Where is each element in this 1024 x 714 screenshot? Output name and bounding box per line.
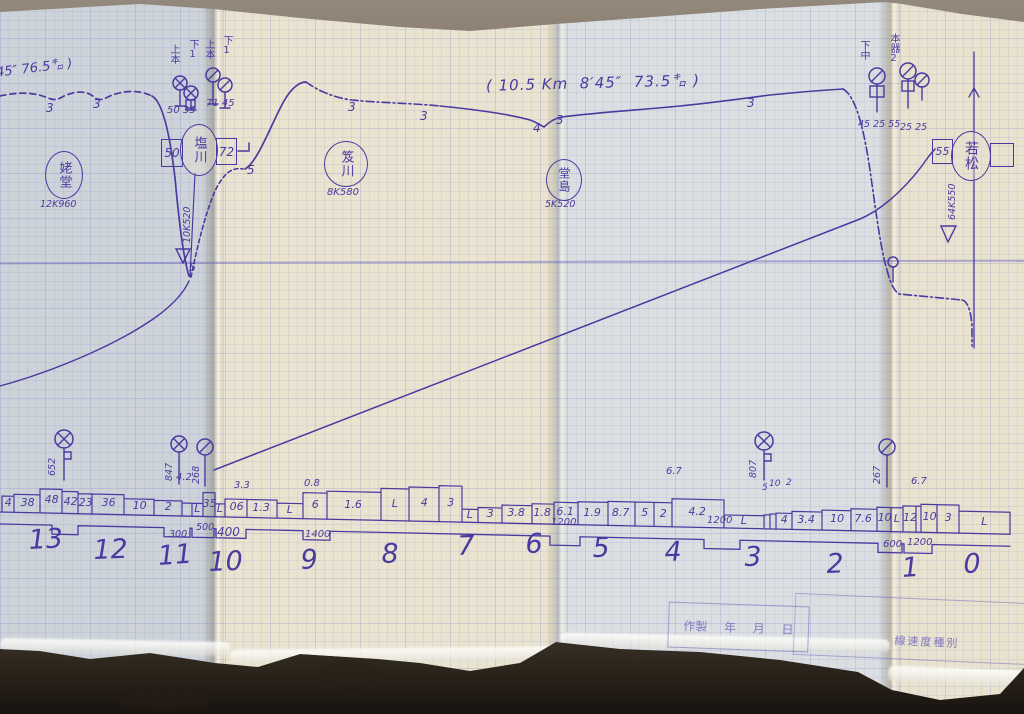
gradient-value: 1.8 bbox=[533, 507, 551, 518]
station-name-shiokawa: 塩川 bbox=[193, 136, 206, 164]
station-box-shiokawa-right: 72 bbox=[216, 138, 237, 165]
speed-class-label: 線速度種別 bbox=[894, 632, 960, 651]
handwritten-label: 11 bbox=[157, 541, 193, 570]
signal-circle-slash-icon bbox=[900, 63, 916, 108]
handwritten-label: 9 bbox=[300, 546, 319, 574]
speed-curve-left-dashed bbox=[0, 92, 152, 100]
handwritten-label: 1200 bbox=[551, 518, 576, 528]
stop-triangle-wakamatsu bbox=[941, 226, 956, 242]
handwritten-label: 0 bbox=[963, 550, 981, 578]
handwritten-label: 3 bbox=[556, 114, 564, 126]
gradient-value: 10 bbox=[830, 513, 844, 524]
handwritten-label: 下1 bbox=[221, 35, 231, 56]
handwritten-label: 10 bbox=[769, 480, 780, 489]
gradient-value: 38 bbox=[21, 497, 35, 508]
gradient-value: 2 bbox=[660, 508, 667, 519]
speed-class-stamp-box: 線速度種別 bbox=[793, 593, 1024, 665]
station-circle-wakamatsu: 若松 bbox=[951, 131, 991, 181]
handwritten-label: 1200 bbox=[907, 538, 932, 548]
handwritten-label: 25 25 bbox=[900, 123, 927, 133]
handwritten-label: 10K520 bbox=[183, 207, 193, 243]
gradient-value: 12 bbox=[903, 512, 917, 523]
stamp-year-label: 年 bbox=[724, 618, 737, 635]
handwritten-label: 6.7 bbox=[911, 477, 927, 487]
gradient-value: 10 bbox=[133, 500, 147, 511]
station-name-ubado: 姥堂 bbox=[58, 161, 71, 189]
station-box-shiokawa-left: 50 bbox=[161, 139, 183, 167]
handwritten-label: 3.3 bbox=[234, 481, 250, 491]
handwritten-label: 10 bbox=[208, 548, 243, 576]
stone-texture-blotch bbox=[120, 690, 210, 710]
handwritten-label: 50 35 bbox=[167, 106, 196, 116]
profile-baseline-with-notches bbox=[0, 524, 1010, 554]
handwritten-label: 7 bbox=[457, 532, 475, 560]
station-name-wakamatsu: 若松 bbox=[964, 141, 978, 171]
handwritten-label: 4 bbox=[533, 122, 541, 134]
handwritten-label: 13 bbox=[28, 525, 64, 554]
station-km-dojima: 5K520 bbox=[545, 200, 575, 210]
handwritten-label: 下1 bbox=[187, 39, 197, 60]
gradient-value: L bbox=[217, 503, 223, 514]
handwritten-label: 268 bbox=[192, 466, 202, 484]
signal-circle-slash-icon bbox=[915, 73, 929, 100]
handwritten-label: 500 bbox=[196, 523, 214, 533]
handwritten-label: 5 bbox=[247, 164, 255, 176]
gradient-value: 2 bbox=[165, 501, 172, 512]
handwritten-label: 5 bbox=[592, 534, 610, 562]
gradient-value: L bbox=[287, 504, 293, 515]
gradient-value: 4 bbox=[781, 514, 788, 525]
gradient-value: 36 bbox=[102, 497, 116, 508]
handwritten-label: 1 bbox=[901, 554, 920, 582]
gradient-value: 3.4 bbox=[797, 514, 815, 525]
handwritten-label: 64K550 bbox=[948, 184, 958, 220]
station-name-oikawa: 笈川 bbox=[340, 150, 353, 178]
handwritten-label: 847 bbox=[165, 463, 175, 481]
gradient-value: 5 bbox=[641, 507, 648, 518]
station-circle-oikawa: 笈川 bbox=[324, 141, 368, 187]
handwritten-label: 上本 bbox=[203, 39, 213, 59]
handwritten-label: 2 bbox=[786, 479, 792, 488]
handwritten-label: 1200 bbox=[707, 516, 732, 526]
handwritten-label: 3 bbox=[420, 110, 428, 122]
stamp-made-label: 作製 bbox=[683, 617, 708, 635]
gradient-value: 3 bbox=[487, 508, 494, 519]
handwritten-label: 4 bbox=[664, 538, 682, 566]
station-box-wakamatsu-right bbox=[990, 143, 1014, 167]
handwritten-label: 5 bbox=[762, 484, 768, 493]
handwritten-label: 3 bbox=[744, 543, 762, 571]
gradient-value: L bbox=[194, 503, 200, 514]
wakamatsu-vertical-line bbox=[969, 52, 979, 348]
gradient-value: 6 bbox=[312, 499, 319, 510]
station-km-oikawa: 8K580 bbox=[327, 188, 359, 198]
gradient-value: 3.8 bbox=[507, 507, 525, 518]
gradient-value: L bbox=[894, 513, 900, 524]
handwritten-label: 3 bbox=[747, 97, 755, 109]
handwritten-label: 3 bbox=[46, 102, 54, 114]
handwritten-label: 6 bbox=[525, 530, 543, 558]
station-km-ubado: 12K960 bbox=[40, 200, 76, 210]
handwritten-label: 上本 bbox=[168, 44, 178, 64]
gradient-value: 8.7 bbox=[612, 507, 630, 518]
time-line-left bbox=[0, 281, 189, 386]
gradient-value: L bbox=[741, 515, 747, 526]
speed-curve-depart-dashed bbox=[191, 169, 243, 277]
handwritten-label: 600 bbox=[883, 540, 902, 550]
handwritten-label: 下中 bbox=[858, 40, 868, 60]
date-stamp-box: 作製 年 月 日 bbox=[667, 602, 810, 653]
handwritten-label: 0.8 bbox=[304, 479, 320, 489]
stamp-month-label: 月 bbox=[753, 619, 766, 636]
handwritten-label: 5 bbox=[189, 262, 196, 273]
handwritten-label: 4.2 bbox=[176, 473, 192, 483]
photo-of-railway-run-curve-chart: ( 10.5 Km 8′45″ 73.5㌔ ) 45″ 76.5㌔ ) 姥堂 1… bbox=[0, 0, 1024, 714]
signal-circle-slash-icon bbox=[869, 68, 885, 112]
signal-symbols bbox=[55, 63, 929, 487]
folded-graph-paper: ( 10.5 Km 8′45″ 73.5㌔ ) 45″ 76.5㌔ ) 姥堂 1… bbox=[0, 0, 1024, 714]
limit-bracket bbox=[238, 143, 249, 151]
gradient-value: 3 bbox=[945, 512, 952, 523]
gradient-value: L bbox=[467, 509, 473, 520]
gradient-value: 48 bbox=[45, 494, 59, 505]
handwritten-label: 71 45 bbox=[206, 99, 235, 109]
gradient-value: 23 bbox=[79, 497, 93, 508]
handwritten-label: 45 25 55 bbox=[858, 120, 900, 130]
station-name-dojima: 堂島 bbox=[558, 167, 570, 193]
handwritten-label: 8 bbox=[381, 540, 399, 568]
gradient-value: L bbox=[392, 498, 398, 509]
handwritten-label: 6.7 bbox=[666, 467, 682, 477]
station-circle-shiokawa: 塩川 bbox=[180, 124, 218, 176]
stamp-day-label: 日 bbox=[781, 620, 794, 637]
gradient-value: 42 bbox=[64, 496, 78, 507]
handwritten-label: 3 bbox=[348, 101, 356, 113]
speed-curve-middle bbox=[440, 89, 843, 127]
gradient-value: 4 bbox=[5, 497, 12, 508]
handwritten-label: 652 bbox=[48, 458, 58, 476]
gradient-value: 4.2 bbox=[688, 506, 706, 517]
handwritten-label: 本器2 bbox=[888, 33, 898, 64]
handwritten-label: 2 bbox=[826, 550, 844, 578]
gradient-value: 06 bbox=[230, 501, 244, 512]
handwritten-label: 1400 bbox=[305, 530, 330, 540]
gradient-value: 1.6 bbox=[344, 499, 362, 510]
gradient-value: 10 bbox=[923, 511, 937, 522]
gradient-value: 6.1 bbox=[556, 506, 574, 517]
gradient-value: 10 bbox=[878, 512, 892, 523]
gradient-value: 7.6 bbox=[854, 513, 872, 524]
gradient-value: 35 bbox=[203, 498, 217, 509]
speed-curve-coast-1 bbox=[306, 82, 440, 106]
gradient-value: L bbox=[981, 516, 987, 527]
station-box-wakamatsu-left: 55 bbox=[932, 139, 953, 164]
handwritten-label: 400 bbox=[217, 526, 240, 538]
handwritten-label: 267 bbox=[873, 466, 883, 484]
speed-curve-accelerate bbox=[245, 82, 306, 169]
gradient-value: 1.9 bbox=[583, 507, 601, 518]
gradient-value: 1.3 bbox=[252, 502, 270, 513]
time-line-diagonal bbox=[214, 149, 935, 470]
gradient-value: 4 bbox=[421, 497, 428, 508]
station-circle-dojima: 堂島 bbox=[546, 159, 582, 201]
stone-texture-blotch bbox=[320, 660, 380, 686]
handwritten-label: 807 bbox=[749, 460, 759, 478]
station-circle-ubado: 姥堂 bbox=[45, 151, 83, 199]
handwritten-label: 3 bbox=[93, 98, 101, 110]
handwritten-label: 12 bbox=[93, 536, 128, 564]
gradient-value: 3 bbox=[447, 497, 454, 508]
